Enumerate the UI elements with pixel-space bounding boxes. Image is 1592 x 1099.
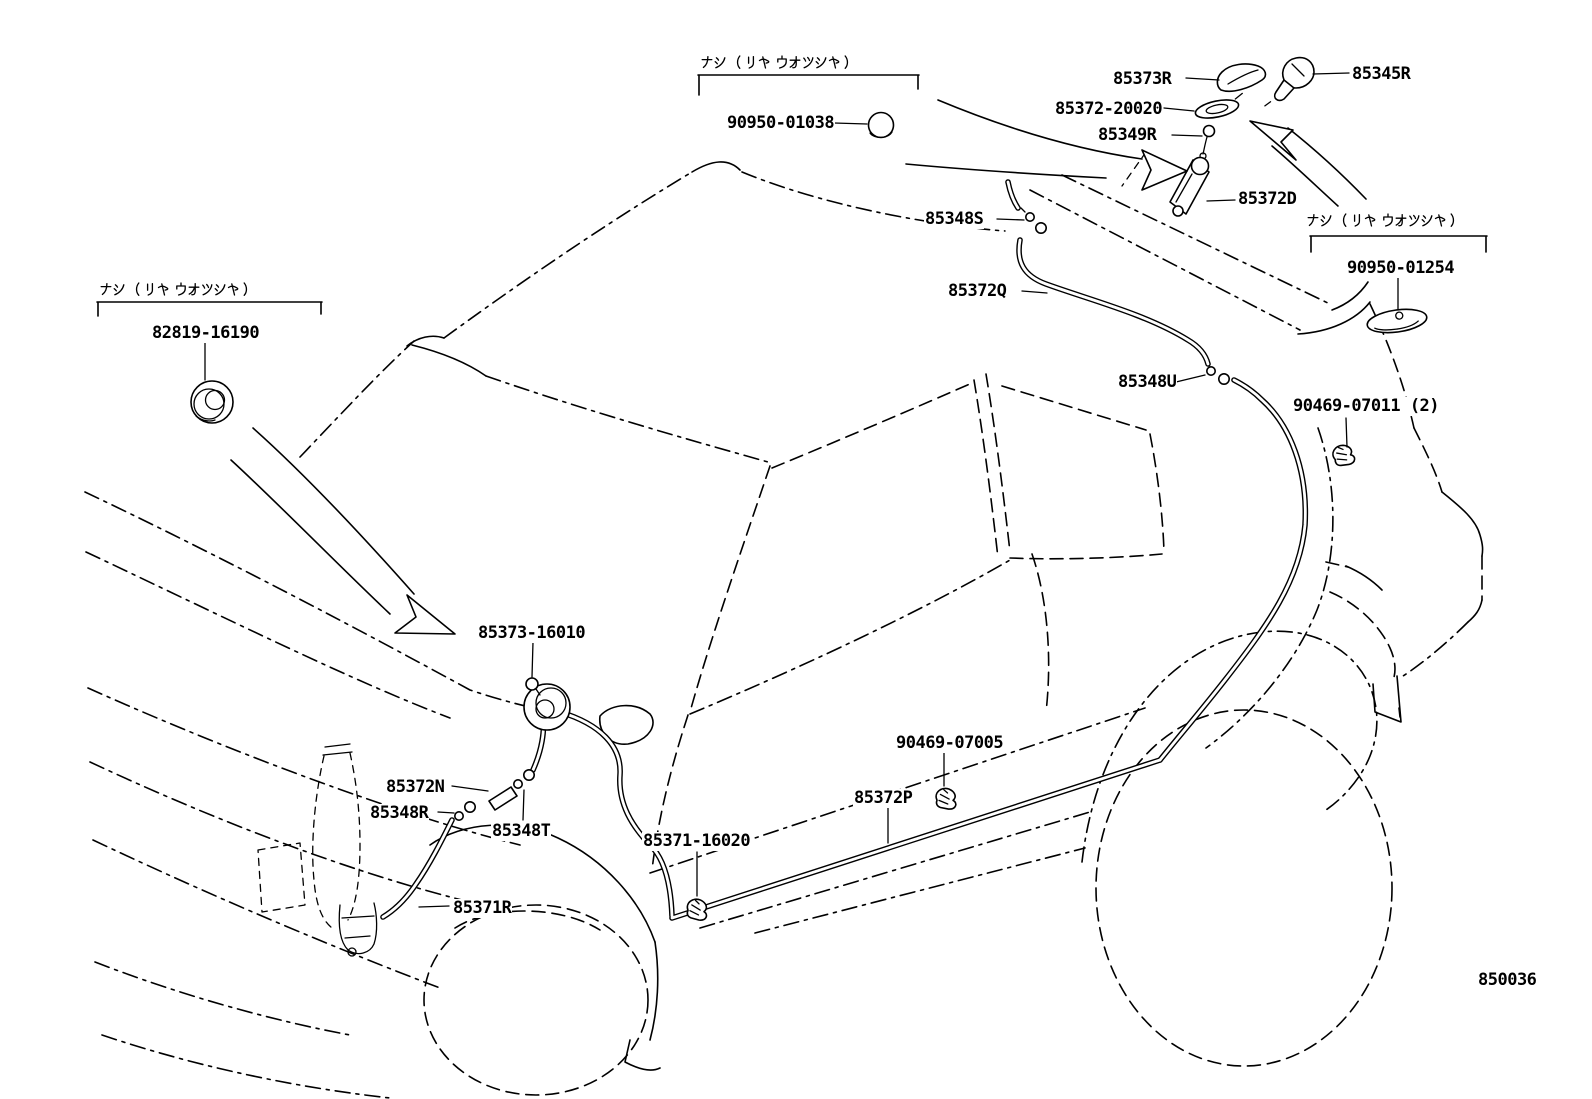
nozzle-85345R — [1275, 58, 1314, 101]
hose-joint-85348R — [455, 802, 475, 820]
part-label-85372-20020[interactable]: 85372-20020 — [1054, 100, 1163, 119]
part-label-85371-16020[interactable]: 85371-16020 — [642, 832, 751, 851]
figure-number: 850036 — [1478, 971, 1536, 990]
part-label-90950-01038[interactable]: 90950-01038 — [726, 114, 835, 133]
parts-diagram-page: 90950-01038 85373R 85345R 85372-20020 85… — [0, 0, 1592, 1099]
hose-joint-85348U — [1207, 367, 1229, 384]
part-label-85349R[interactable]: 85349R — [1097, 126, 1157, 145]
leader-lines — [205, 73, 1398, 907]
plug-90950-01254 — [1366, 306, 1428, 336]
part-label-85372D[interactable]: 85372D — [1237, 190, 1297, 209]
part-label-90469-07005[interactable]: 90469-07005 — [895, 734, 1004, 753]
washer-hose-routing — [383, 182, 1305, 918]
part-label-85348T[interactable]: 85348T — [491, 822, 551, 841]
hose-segment-85372N — [489, 787, 517, 810]
part-label-85372P[interactable]: 85372P — [853, 789, 913, 808]
rear-washer-diagram-art — [0, 0, 1592, 1099]
part-label-85372N[interactable]: 85372N — [385, 778, 445, 797]
packing-85349R — [1200, 126, 1215, 160]
part-label-85348R[interactable]: 85348R — [369, 804, 429, 823]
hose-85373R — [1217, 64, 1265, 91]
direction-arrow-left — [231, 428, 455, 634]
clip-85371-16020 — [686, 898, 709, 921]
plug-90950-01038 — [869, 113, 894, 138]
grommet-82819-16190 — [191, 381, 233, 423]
clip-90469-07005 — [935, 788, 957, 810]
part-label-85371R[interactable]: 85371R — [452, 899, 512, 918]
hose-joint-85348S — [1021, 208, 1046, 233]
part-label-85348U[interactable]: 85348U — [1117, 373, 1177, 392]
grommet-85372-20020 — [1193, 93, 1246, 121]
part-label-90950-01254[interactable]: 90950-01254 — [1346, 259, 1455, 278]
car-body-outline — [85, 94, 1483, 1098]
part-label-85373-16010[interactable]: 85373-16010 — [477, 624, 586, 643]
part-label-85373R[interactable]: 85373R — [1112, 70, 1172, 89]
part-label-90469-07011[interactable]: 90469-07011 (2) — [1292, 397, 1440, 416]
part-label-85372Q[interactable]: 85372Q — [947, 282, 1007, 301]
part-label-85345R[interactable]: 85345R — [1351, 65, 1411, 84]
no-rear-washer-note-top — [698, 56, 919, 95]
part-label-82819-16190[interactable]: 82819-16190 — [151, 324, 260, 343]
grommet-85373-16010 — [524, 678, 570, 730]
hose-joint-85348T — [514, 770, 534, 788]
no-rear-washer-note-right — [1308, 214, 1487, 252]
clip-90469-07011 — [1331, 443, 1356, 468]
no-rear-washer-note-left — [97, 283, 322, 316]
part-label-85348S[interactable]: 85348S — [924, 210, 984, 229]
